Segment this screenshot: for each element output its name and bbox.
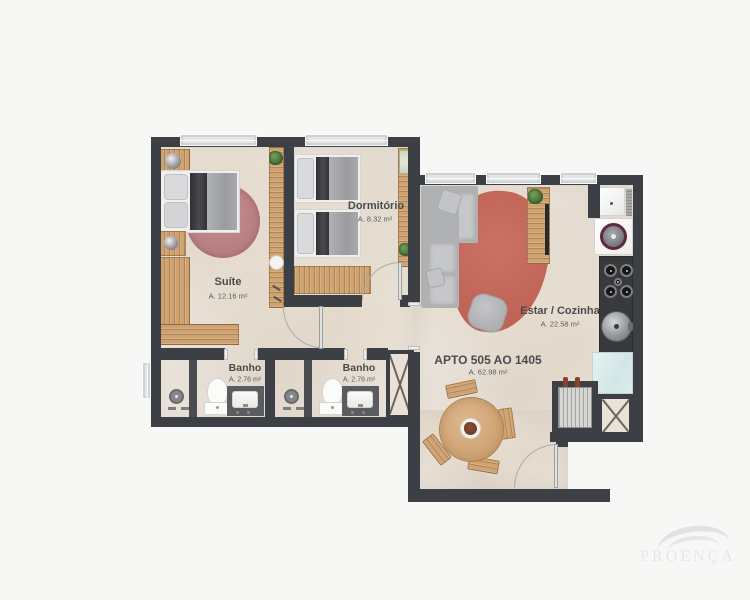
vanity-knob bbox=[362, 411, 365, 414]
wall bbox=[633, 175, 643, 442]
stove-burner-small bbox=[614, 278, 622, 286]
tv-icon bbox=[545, 204, 549, 255]
vanity-knob bbox=[236, 411, 239, 414]
wall bbox=[367, 348, 388, 360]
washer-drum-dot bbox=[611, 234, 616, 239]
shower-divider bbox=[304, 360, 312, 417]
suite-bed bbox=[161, 171, 239, 232]
door-jamb bbox=[224, 349, 228, 360]
room-area-suite: A. 12.16 m² bbox=[209, 292, 248, 301]
vanity-faucet bbox=[243, 404, 248, 407]
door-leaf bbox=[319, 306, 323, 349]
plant-icon bbox=[269, 151, 283, 165]
shower-control bbox=[181, 407, 189, 410]
grill bbox=[558, 387, 592, 428]
floor-plan: Suíte A. 12.16 m² Dormitório A. 8.32 m² … bbox=[0, 0, 750, 600]
dorm-bed-1 bbox=[295, 155, 360, 202]
window bbox=[305, 134, 388, 146]
pillow bbox=[297, 213, 314, 254]
bed-duvet bbox=[329, 157, 358, 200]
logo-text: PROENÇA bbox=[628, 548, 748, 566]
grill-knob bbox=[575, 377, 580, 387]
wall bbox=[265, 360, 275, 417]
vanity-knob bbox=[247, 411, 250, 414]
toilet-flush-dot bbox=[216, 406, 219, 409]
room-area-estar-cozinha: A. 22.58 m² bbox=[541, 320, 580, 329]
dorm-bed-2 bbox=[295, 210, 360, 257]
wall bbox=[550, 432, 643, 442]
shower-divider bbox=[189, 360, 197, 417]
room-label-banho-2: Banho bbox=[343, 362, 376, 374]
shower-control bbox=[283, 407, 291, 410]
bed-duvet bbox=[207, 173, 237, 230]
door-leaf bbox=[554, 444, 558, 488]
stove-burner bbox=[604, 264, 617, 277]
door-jamb bbox=[363, 349, 367, 360]
shower-head-dot bbox=[175, 395, 178, 398]
suite-stool bbox=[269, 255, 284, 270]
room-label-suite: Suíte bbox=[215, 276, 242, 288]
shower-control bbox=[168, 407, 176, 410]
door-leaf bbox=[398, 262, 402, 300]
vent-strip bbox=[626, 189, 632, 216]
wall bbox=[408, 489, 610, 502]
toilet-bowl bbox=[322, 378, 343, 405]
toilet-bowl bbox=[207, 378, 228, 405]
dorm-wardrobe bbox=[294, 266, 371, 294]
room-label-dormitorio: Dormitório bbox=[348, 200, 404, 212]
room-area-dormitorio: A. 8.32 m² bbox=[358, 215, 393, 224]
window bbox=[560, 172, 597, 184]
apartment-area: A. 62.98 m² bbox=[469, 368, 508, 377]
shower-control bbox=[296, 407, 304, 410]
door-jamb bbox=[408, 302, 420, 306]
wall bbox=[588, 185, 600, 218]
wall bbox=[284, 147, 294, 300]
glass-counter bbox=[592, 352, 633, 394]
bed-blanket bbox=[316, 157, 329, 200]
door-jamb bbox=[254, 349, 258, 360]
wall bbox=[284, 295, 362, 307]
wall bbox=[151, 137, 161, 427]
door-jamb bbox=[344, 349, 348, 360]
suite-dressing-strip bbox=[269, 147, 284, 308]
wall bbox=[408, 352, 420, 417]
vanity-knob bbox=[351, 411, 354, 414]
window bbox=[142, 362, 151, 399]
window bbox=[180, 134, 257, 146]
stove-burner bbox=[620, 264, 633, 277]
window bbox=[486, 172, 541, 184]
window bbox=[425, 172, 476, 184]
pillow bbox=[164, 202, 188, 228]
bed-blanket bbox=[190, 173, 207, 230]
room-area-banho-2: A. 2.76 m² bbox=[343, 377, 375, 384]
stove-burner bbox=[620, 285, 633, 298]
apartment-title: APTO 505 AO 1405 bbox=[434, 353, 541, 367]
room-area-banho-1: A. 2.76 m² bbox=[229, 377, 261, 384]
wall bbox=[408, 137, 420, 302]
bed-duvet bbox=[329, 212, 358, 255]
wall bbox=[258, 348, 284, 360]
stove-burner bbox=[604, 285, 617, 298]
wall bbox=[151, 417, 413, 427]
room-label-estar-cozinha: Estar / Cozinha bbox=[520, 305, 599, 317]
shower-head-dot bbox=[290, 395, 293, 398]
sink-drain bbox=[614, 324, 619, 329]
wall bbox=[151, 348, 225, 360]
centerpiece-food bbox=[464, 422, 477, 435]
wall bbox=[284, 348, 345, 360]
plant-icon bbox=[528, 189, 543, 204]
pillow bbox=[297, 158, 314, 199]
suite-lamp-top bbox=[165, 153, 181, 169]
room-label-banho-1: Banho bbox=[229, 362, 262, 374]
suite-wardrobe-horizontal bbox=[159, 324, 239, 345]
toilet-flush-dot bbox=[331, 406, 334, 409]
vanity-faucet bbox=[358, 404, 363, 407]
pillow bbox=[164, 174, 188, 200]
suite-lamp-bottom bbox=[164, 236, 178, 250]
grill-knob bbox=[563, 377, 568, 387]
laundry-drain bbox=[610, 202, 613, 205]
door-jamb bbox=[408, 346, 420, 350]
bed-blanket bbox=[316, 212, 329, 255]
